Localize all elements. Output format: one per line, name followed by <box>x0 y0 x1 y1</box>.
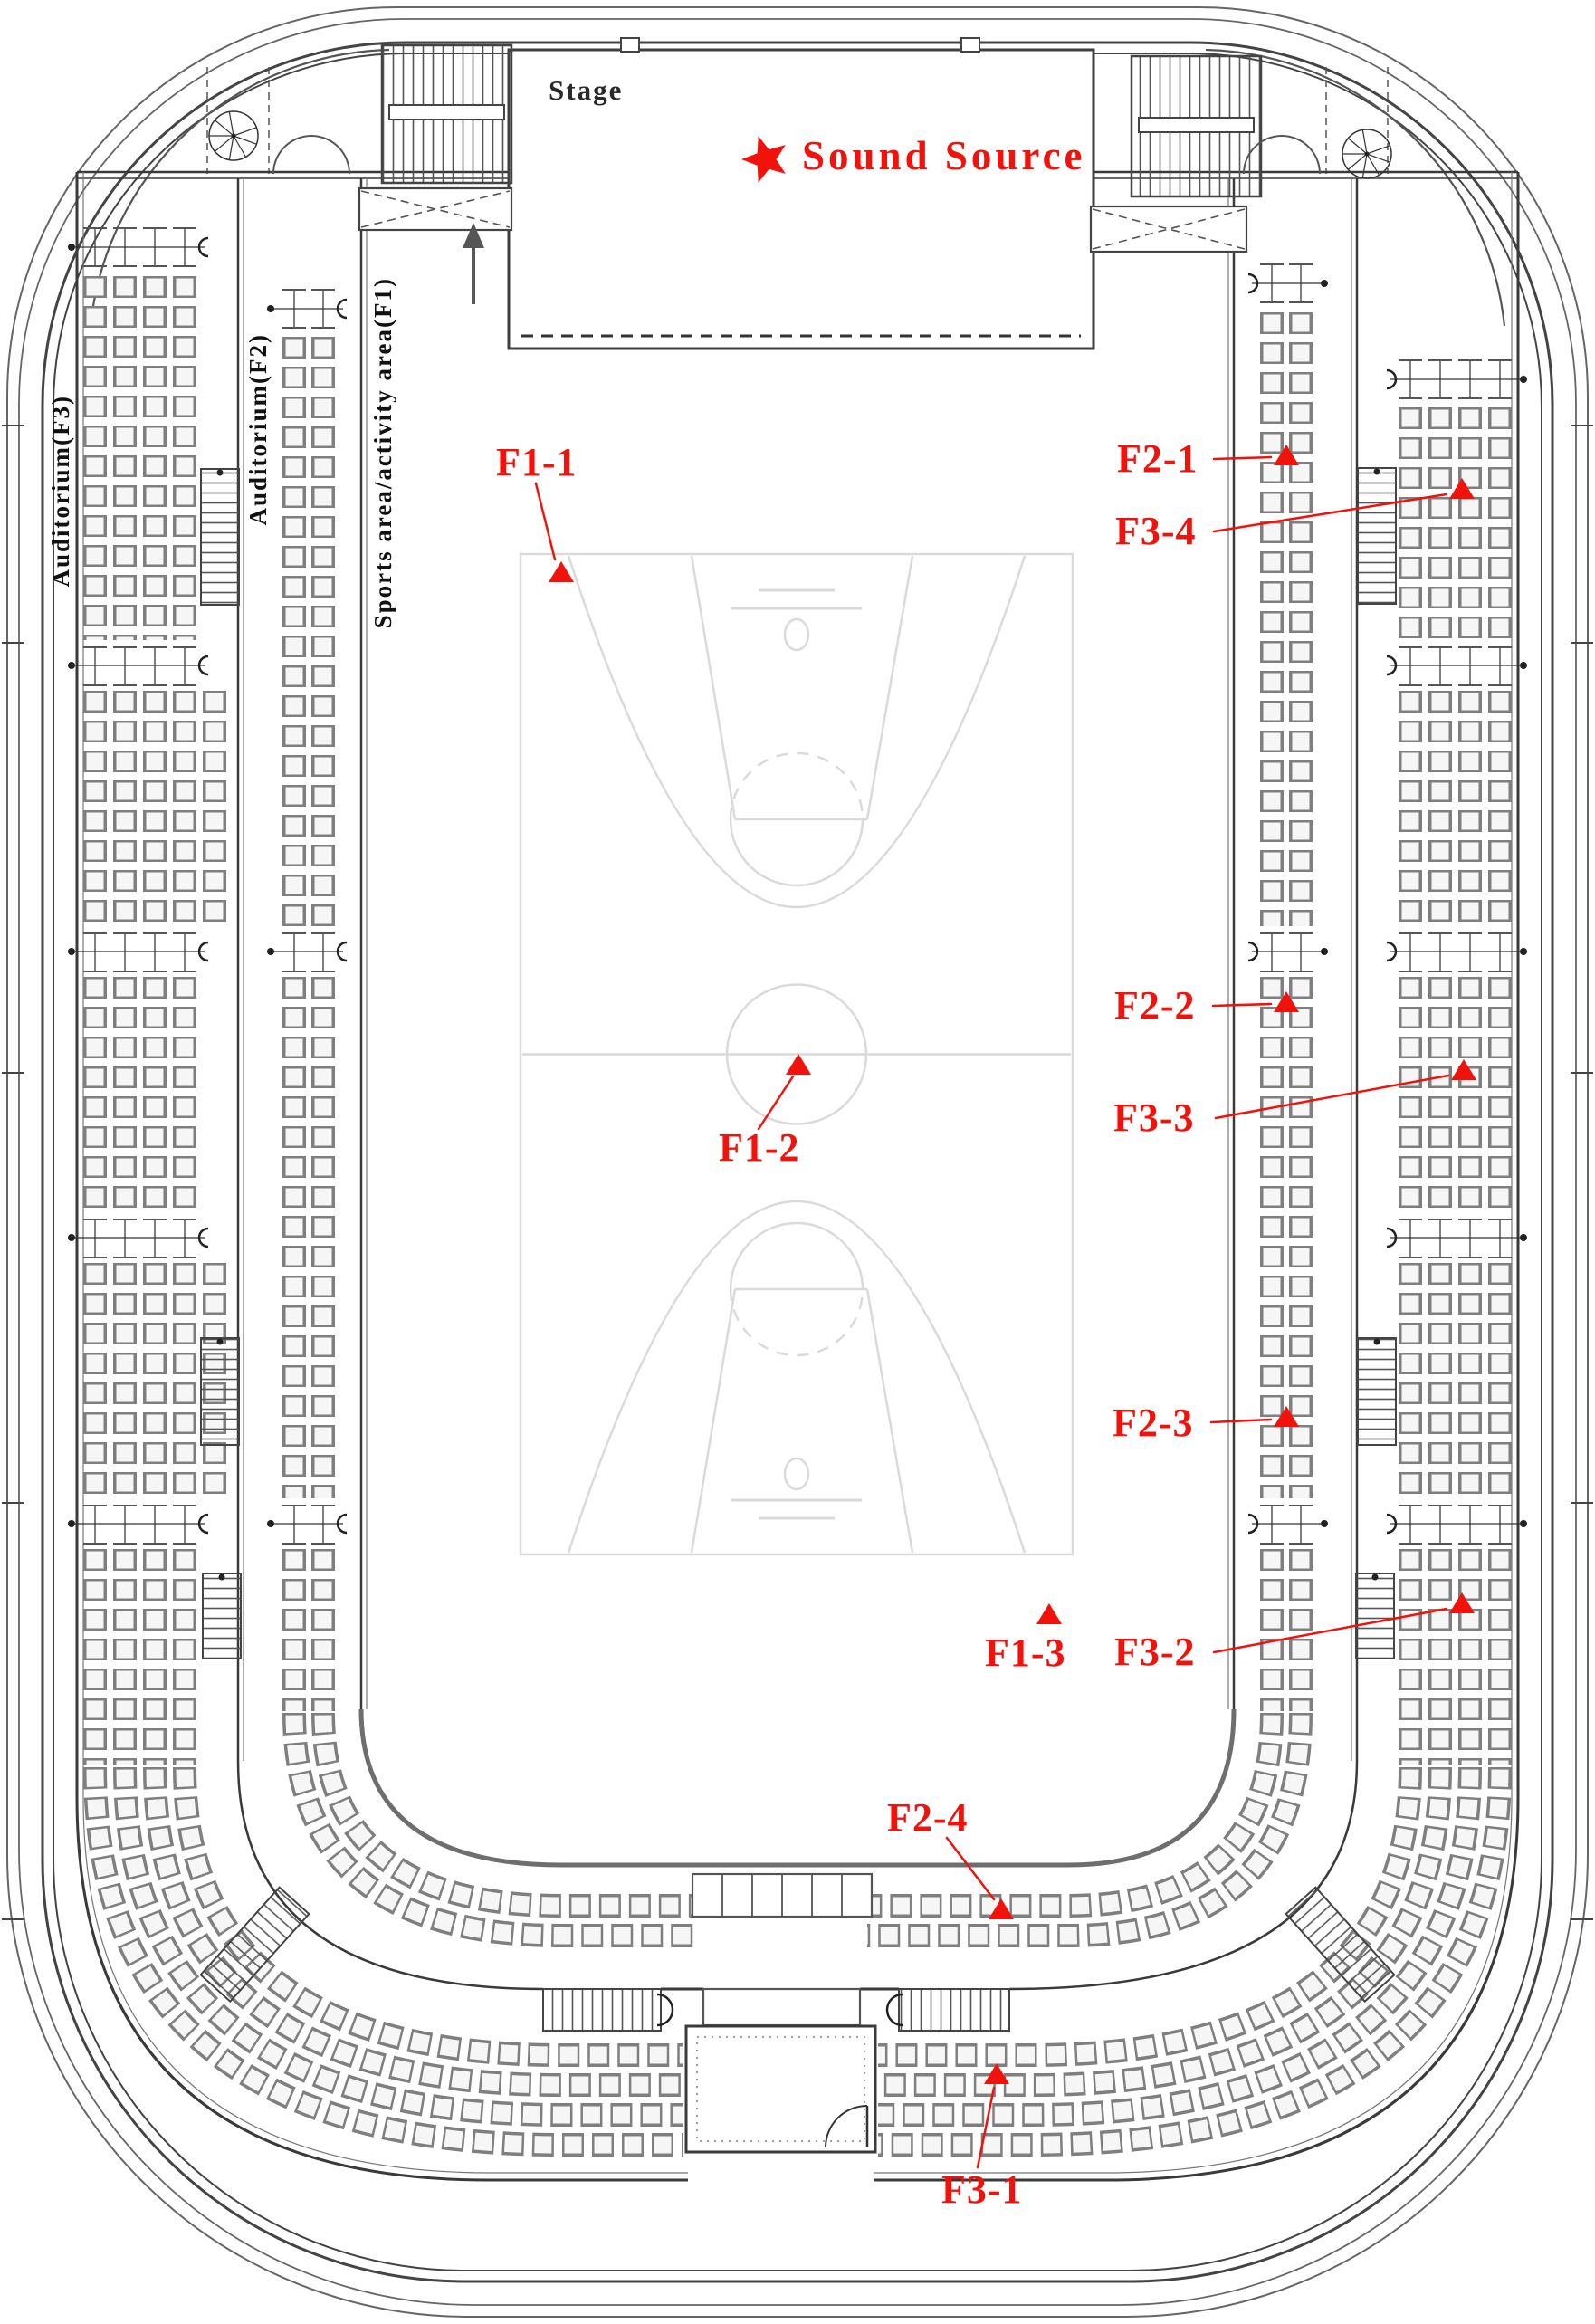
measure-marker-f1-2 <box>786 1054 811 1075</box>
measure-label-f2-4: F2-4 <box>887 1798 969 1838</box>
side-stairs <box>201 468 1396 2002</box>
area-label-auditorium-f2: Auditorium(F2) <box>246 333 271 526</box>
measure-label-f2-1: F2-1 <box>1117 439 1199 479</box>
area-label-auditorium-f3: Auditorium(F3) <box>49 395 73 588</box>
measure-label-f2-2: F2-2 <box>1114 986 1196 1026</box>
measure-label-f1-2: F1-2 <box>719 1128 800 1168</box>
measure-label-f3-1: F3-1 <box>941 2170 1023 2210</box>
measure-label-f3-2: F3-2 <box>1114 1632 1196 1672</box>
measure-label-f2-3: F2-3 <box>1113 1403 1194 1443</box>
measure-marker-f1-3 <box>1036 1603 1062 1624</box>
measure-label-f1-3: F1-3 <box>985 1633 1066 1673</box>
sound-source-label: Sound Source <box>802 136 1086 177</box>
measure-label-f1-1: F1-1 <box>496 443 578 483</box>
basketball-court <box>521 554 1073 1554</box>
measure-label-f3-4: F3-4 <box>1115 512 1197 551</box>
measure-label-f3-3: F3-3 <box>1113 1098 1195 1138</box>
stage-label: Stage <box>549 76 623 104</box>
floor-plan: Stage Sound Source Auditorium(F3) Audito… <box>0 0 1595 2324</box>
area-label-sports-area-f1: Sports area/activity area(F1) <box>371 277 396 628</box>
